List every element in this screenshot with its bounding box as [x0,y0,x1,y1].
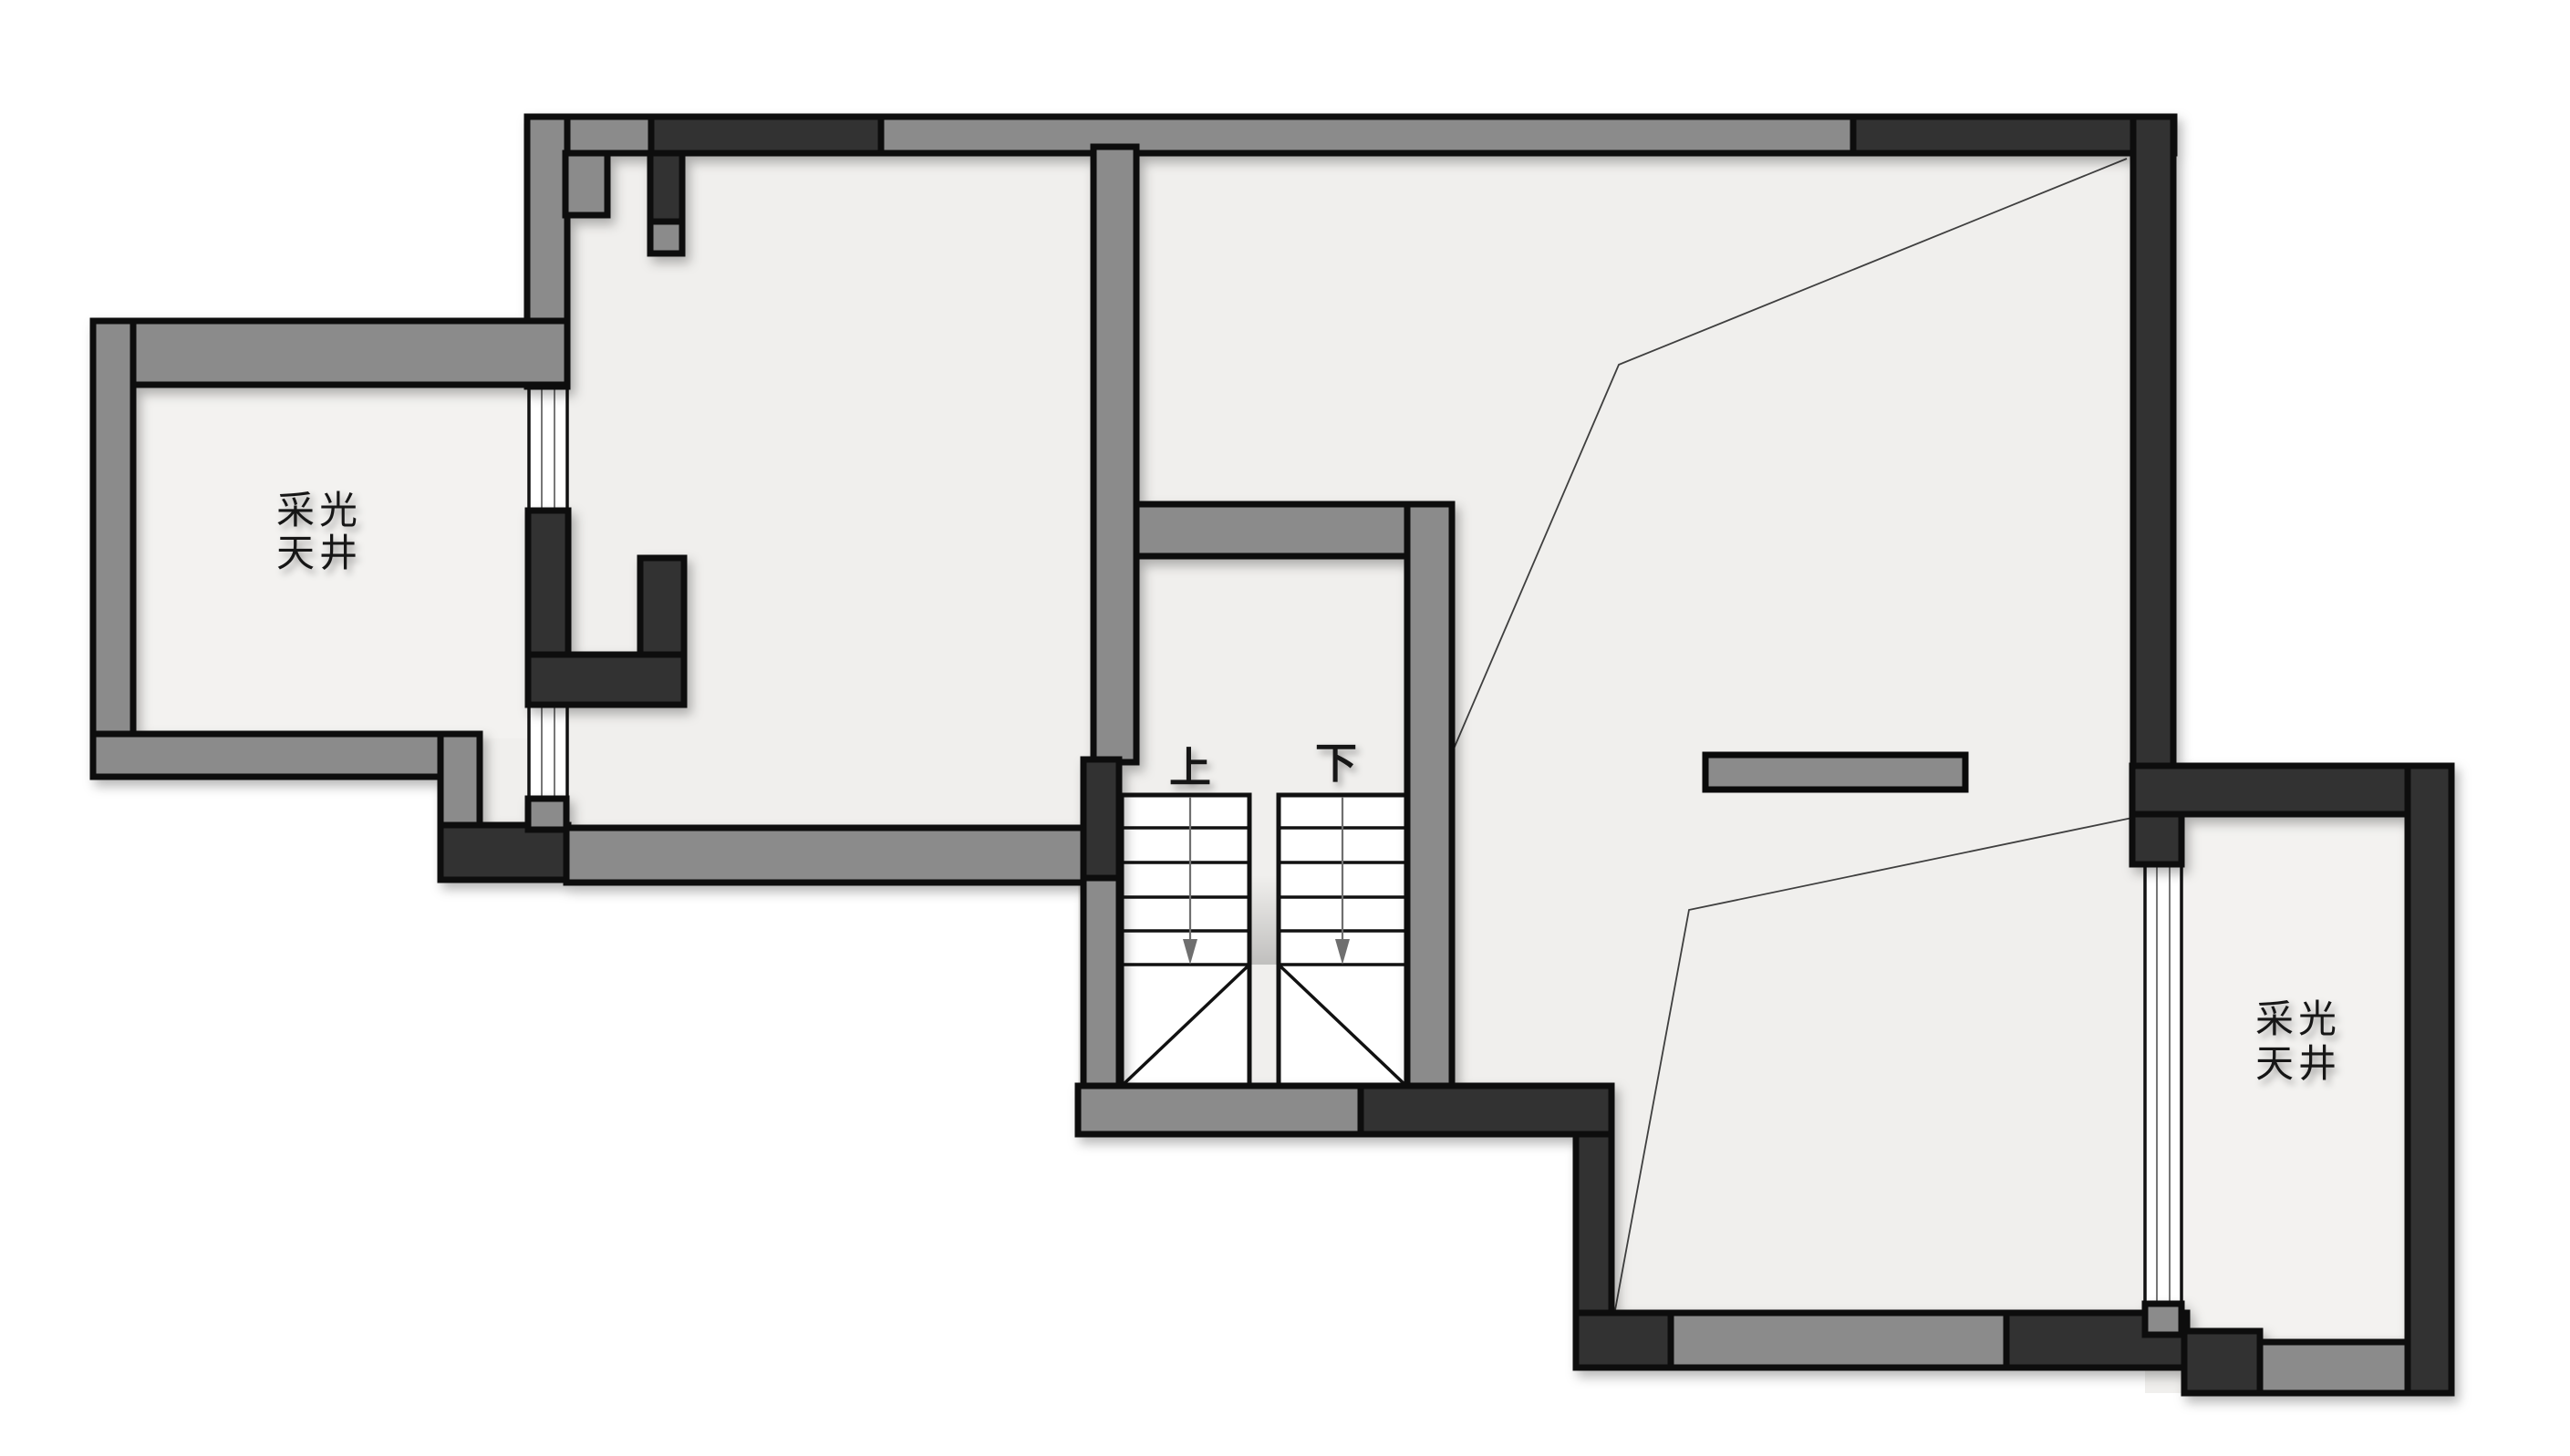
right-outer-wall [2133,117,2173,773]
left-lightwell-label-line2: 天井 [276,532,362,574]
stair-gap-shading [1251,875,1277,965]
top-wall-dark-right [1853,117,2174,153]
stair-right-wall [1407,504,1452,1090]
right-lightwell-top-wall [2132,766,2451,814]
left-lightwell-top-wall [93,321,567,385]
top-wall-stub [650,153,682,222]
right-lightwell-bottom-gray [2260,1342,2408,1393]
right-window-sill [2145,1304,2181,1335]
left-room-bottom-wall [566,828,1083,883]
upper-left-wall-step [565,153,607,215]
stair-left-pier-dark [1083,759,1119,878]
stair-left-pier-gray [1083,878,1119,1090]
stair-top-wall [1136,504,1448,556]
right-lightwell-label-line1: 采光 [2255,997,2341,1040]
left-window-upper [529,387,567,511]
left-lightwell-bottom-wall [93,734,480,777]
floor-plan-canvas: 采光 天井 采光 天井 上 下 [0,0,2570,1456]
stairs-up-label: 上 [1169,744,1211,791]
interior-l-wall-vertical [640,558,684,655]
left-lightwell-label-line1: 采光 [276,489,362,532]
stair-bottom-wall-dark [1361,1086,1611,1134]
top-wall-stub-cap [650,222,682,253]
left-bottom-corner-block [440,825,568,880]
top-wall-gray-main [881,117,1855,153]
left-outer-wall [93,321,133,777]
bottom-wall-dark-left [1576,1313,1671,1368]
right-lightwell-bottom-dark [2184,1331,2260,1393]
left-window-sill [528,799,566,830]
beam-bar [1705,755,1965,790]
top-wall-dark-left [651,117,883,153]
interior-l-wall-horizontal [528,655,684,705]
right-lightwell-stub [2132,814,2181,864]
right-lightwell-right-wall [2408,766,2451,1393]
left-window-lower [529,705,567,799]
stairs-down-label: 下 [1315,739,1357,787]
central-vertical-wall [1093,147,1136,762]
right-lightwell-window [2145,864,2181,1304]
bottom-wall-gray [1671,1313,2006,1368]
right-lightwell-label-line2: 天井 [2255,1042,2341,1085]
stair-bottom-wall-gray [1078,1086,1361,1134]
left-lightwell-bottom-step [440,734,480,828]
window-pier [528,511,568,655]
floor-plan-svg: 采光 天井 采光 天井 上 下 [0,0,2570,1456]
